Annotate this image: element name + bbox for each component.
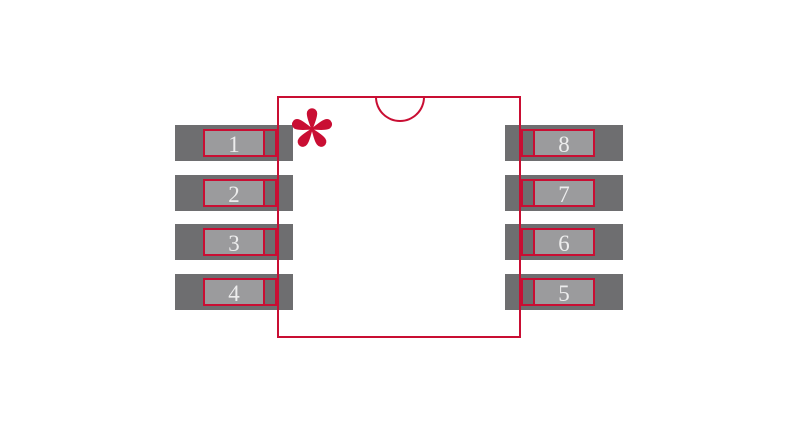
pin-number-2: 2 bbox=[228, 183, 240, 206]
lead-box-pin-2: 2 bbox=[203, 179, 265, 207]
lead-box-pin-1: 1 bbox=[203, 129, 265, 157]
ic-package-footprint-diagram: 1 2 3 4 8 7 6 5 bbox=[0, 0, 800, 436]
lead-box-pin-7: 7 bbox=[533, 179, 595, 207]
pin-number-5: 5 bbox=[558, 282, 570, 305]
lead-box-pin-4: 4 bbox=[203, 278, 265, 306]
pin1-marker-asterisk-icon bbox=[290, 107, 334, 151]
lead-box-pin-8: 8 bbox=[533, 129, 595, 157]
pin-number-8: 8 bbox=[558, 133, 570, 156]
pin-number-6: 6 bbox=[558, 232, 570, 255]
asterisk-arms bbox=[291, 108, 334, 149]
pin-number-7: 7 bbox=[558, 183, 570, 206]
pin-number-3: 3 bbox=[228, 232, 240, 255]
lead-box-pin-6: 6 bbox=[533, 228, 595, 256]
lead-box-pin-3: 3 bbox=[203, 228, 265, 256]
pin-number-1: 1 bbox=[228, 133, 240, 156]
lead-box-pin-5: 5 bbox=[533, 278, 595, 306]
pin-number-4: 4 bbox=[228, 282, 240, 305]
